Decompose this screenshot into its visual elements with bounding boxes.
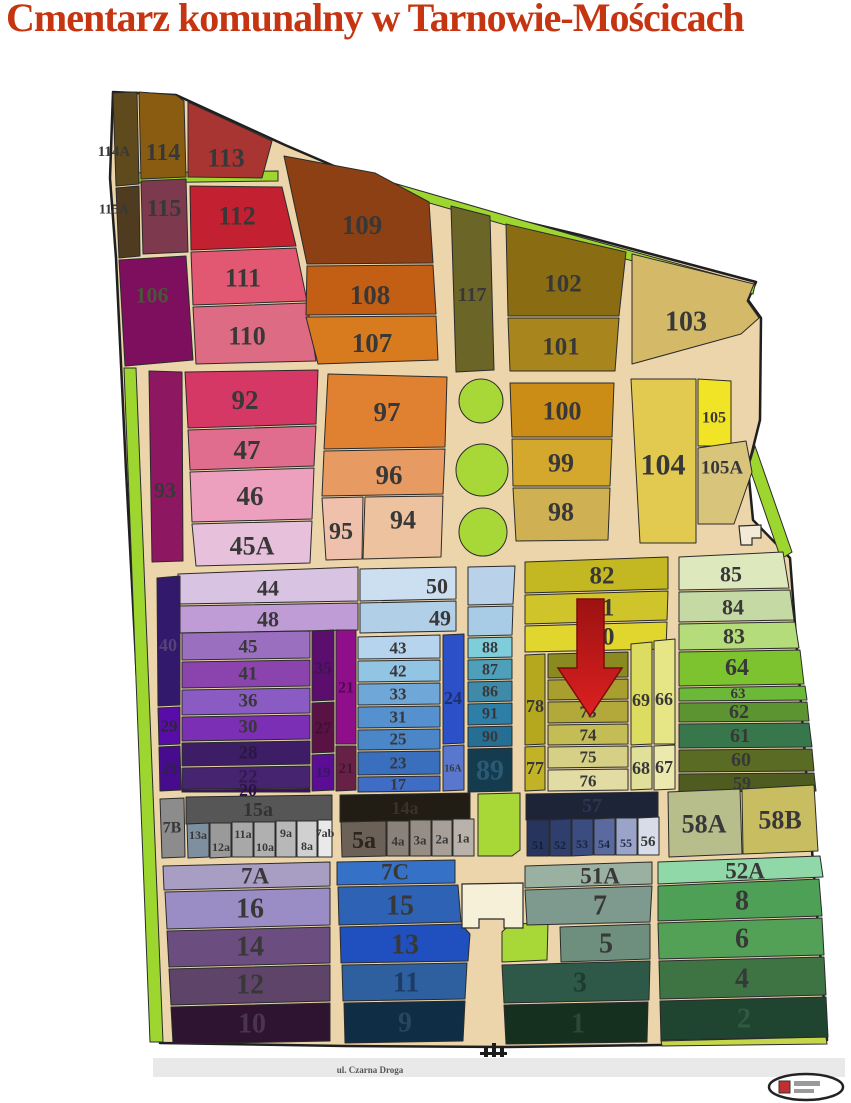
section-label-13a: 13a [189,828,207,842]
section-label-111: 111 [225,264,261,293]
section-label-40: 40 [159,635,177,655]
section-label-49: 49 [429,606,451,631]
section-label-3: 3 [573,968,587,999]
section-label-30: 30 [239,717,258,738]
section-label-14: 14 [236,932,264,963]
roundabout-green [459,379,503,423]
section-label-58B: 58B [758,806,801,835]
section-label-1a: 1a [457,831,471,846]
section-label-19: 19 [316,765,331,781]
section-label-15a: 15a [243,799,273,821]
section-label-14a: 14a [392,798,419,818]
section-label-93: 93 [154,478,176,503]
section-label-45: 45 [239,637,258,658]
section-nb1 [468,566,515,605]
section-label-24: 24 [444,688,462,708]
section-label-12a: 12a [212,840,230,854]
section-label-47: 47 [234,435,261,465]
section-label-94: 94 [390,506,416,535]
section-label-7ab: 7ab [316,826,335,840]
section-label-10a: 10a [256,840,274,854]
section-label-91: 91 [482,706,498,723]
section-label-25: 25 [390,730,407,749]
section-label-115: 115 [147,196,182,222]
section-label-88: 88 [482,640,498,657]
section-label-5a: 5a [352,828,376,854]
section-label-8: 8 [735,886,749,917]
section-label-21c: 21 [339,761,354,777]
section-label-76: 76 [580,772,597,791]
section-label-15: 15 [386,891,414,922]
section-label-7B: 7B [163,820,182,837]
section-label-2a: 2a [436,832,450,847]
section-label-45A: 45A [230,532,275,561]
section-label-85: 85 [720,562,742,587]
section-label-42: 42 [390,662,407,681]
section-label-31: 31 [390,708,407,727]
section-label-90: 90 [482,729,498,746]
section-label-53: 53 [576,837,588,851]
section-label-66: 66 [655,689,673,709]
section-label-109: 109 [342,210,383,240]
section-label-11: 11 [393,968,419,999]
section-label-55: 55 [620,836,632,850]
section-label-29: 29 [161,717,178,736]
roundabout-greens [456,379,508,556]
section-label-44: 44 [257,576,279,601]
section-115A [116,186,140,258]
section-label-67: 67 [655,757,673,777]
section-label-4: 4 [735,964,749,995]
section-label-101: 101 [542,334,580,361]
section-114A [113,92,139,186]
section-label-97: 97 [374,397,401,427]
section-label-52A: 52A [725,859,765,884]
section-label-13: 13 [391,930,419,961]
section-label-1: 1 [571,1009,585,1040]
section-label-58A: 58A [682,810,727,839]
section-label-86: 86 [482,684,498,701]
section-label-9a: 9a [280,826,292,840]
section-label-75: 75 [580,748,597,767]
section-label-6: 6 [735,924,749,955]
section-label-114: 114 [146,140,181,166]
section-label-82: 82 [590,563,615,590]
section-label-110: 110 [228,322,266,351]
section-label-50: 50 [426,574,448,599]
section-label-62: 62 [729,701,749,723]
section-label-83: 83 [723,624,745,649]
section-label-99: 99 [548,449,574,478]
cemetery-map: 114A114113115A11511211111010610910810711… [0,0,851,1103]
section-label-46: 46 [237,481,264,511]
section-label-105A: 105A [701,458,744,479]
section-label-8a: 8a [301,839,313,853]
section-label-96: 96 [376,460,403,490]
section-label-7: 7 [593,891,607,922]
logo [769,1074,843,1100]
section-label-36: 36 [239,691,258,712]
section-label-52: 52 [554,838,566,852]
section-label-114A: 114A [98,144,131,160]
section-label-27: 27 [315,719,333,738]
section-label-78: 78 [526,696,544,716]
section-label-54: 54 [598,837,610,851]
section-label-105: 105 [702,410,726,427]
section-label-16A: 16A [444,764,462,775]
section-106 [119,256,193,366]
cemetery-map-page: Cmentarz komunalny w Tarnowie-Mościcach … [0,0,851,1103]
section-label-16: 16 [236,894,264,925]
section-label-41: 41 [239,664,258,685]
section-nb2 [468,606,513,636]
section-label-106: 106 [136,283,169,308]
section-label-5: 5 [599,929,613,960]
section-label-3a: 3a [414,833,428,848]
section-label-69: 69 [632,690,650,710]
section-label-7C: 7C [381,860,409,885]
section-93 [149,371,183,562]
section-label-57: 57 [582,795,602,817]
section-label-10: 10 [238,1009,266,1040]
section-label-98: 98 [548,498,574,527]
section-label-2: 2 [737,1004,751,1035]
section-label-64: 64 [725,655,749,681]
section-7 [525,886,652,925]
section-label-21a: 21 [162,761,178,778]
section-label-102: 102 [544,271,582,298]
street-label: ul. Czarna Droga [337,1065,404,1075]
section-label-100: 100 [543,397,582,426]
section-label-104: 104 [641,449,686,482]
section-label-74: 74 [580,726,598,745]
section-label-56: 56 [641,834,657,850]
section-label-43: 43 [390,639,407,658]
section-label-28: 28 [239,743,258,764]
section-label-33: 33 [390,685,407,704]
street-band: ul. Czarna Droga [153,1058,845,1077]
section-label-84: 84 [722,595,744,620]
section-label-113: 113 [207,144,245,173]
section-label-112: 112 [218,202,256,231]
green-area [478,793,520,856]
section-label-63: 63 [731,686,746,702]
section-label-117: 117 [458,284,487,306]
section-label-17: 17 [390,777,406,794]
section-label-108: 108 [350,280,391,310]
section-label-11a: 11a [234,827,251,841]
section-label-9: 9 [398,1008,412,1039]
section-label-77: 77 [526,758,544,778]
section-label-48: 48 [257,607,279,632]
section-label-51A: 51A [580,864,620,889]
section-label-115A: 115A [99,203,130,218]
section-label-89: 89 [476,756,504,787]
section-label-12: 12 [236,970,264,1001]
section-label-95: 95 [329,519,353,545]
section-label-7A: 7A [241,864,270,889]
roundabout-green [456,444,508,496]
section-label-68: 68 [632,758,650,778]
section-label-23: 23 [390,754,407,773]
section-label-107: 107 [352,328,393,358]
green-area [502,923,548,962]
section-label-4a: 4a [392,834,406,849]
section-label-60: 60 [731,749,751,771]
section-label-35: 35 [315,659,332,678]
section-label-61: 61 [730,725,750,747]
roundabout-green [459,508,507,556]
section-label-87: 87 [482,662,498,679]
section-label-51: 51 [532,838,544,852]
section-label-21b: 21 [338,680,354,697]
section-label-92: 92 [232,385,259,415]
section-label-103: 103 [665,307,707,338]
